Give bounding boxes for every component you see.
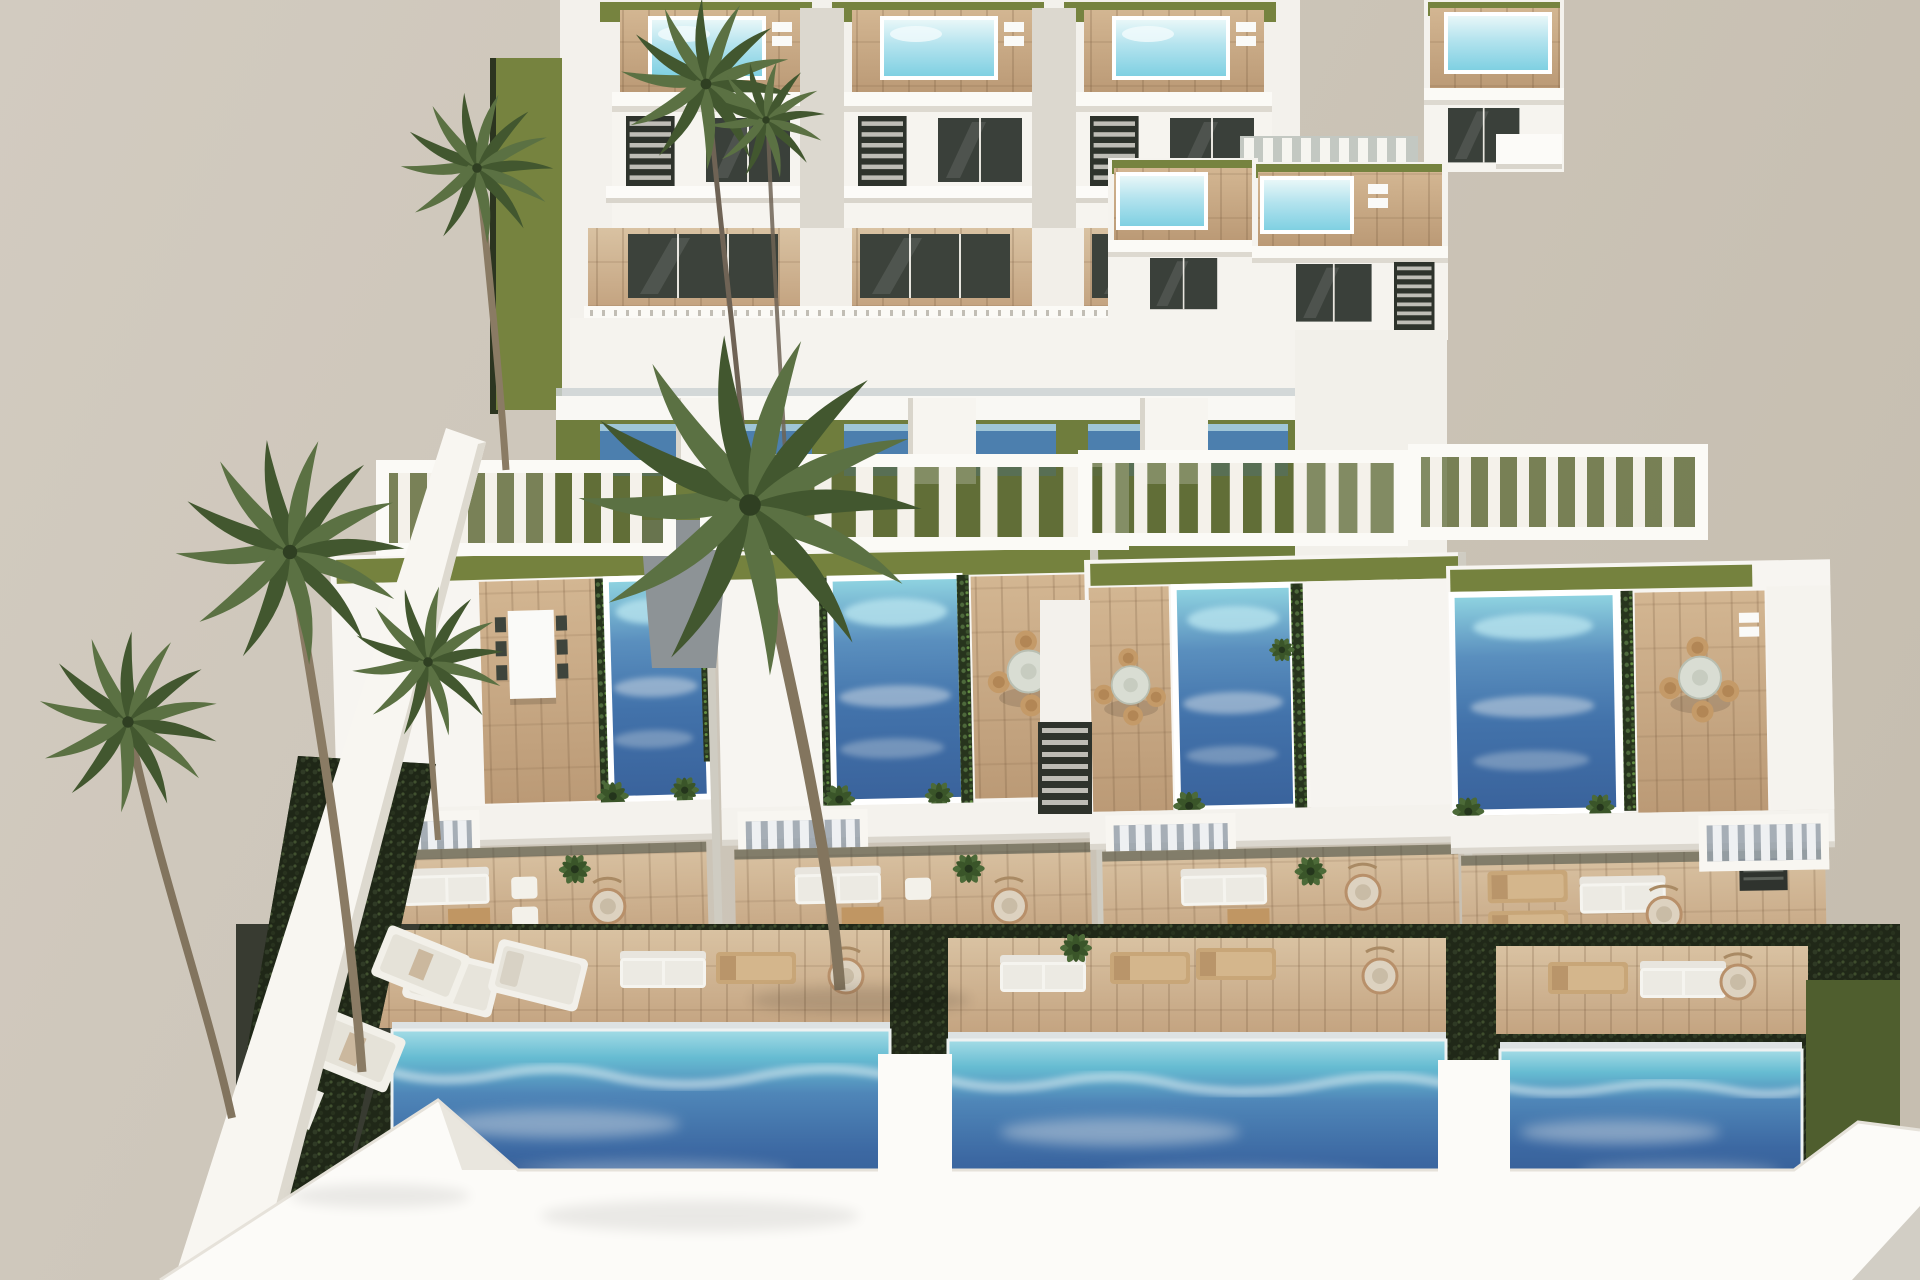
front-villa-4 [1446, 559, 1837, 956]
tier2-villa-2 [1252, 162, 1448, 340]
pergola-3 [1078, 450, 1408, 546]
rooftop-plunge-pool [1120, 176, 1204, 226]
front-villa-3 [1084, 552, 1474, 950]
dining-table [508, 610, 556, 699]
pergola-4 [1408, 444, 1708, 540]
side-lawn [496, 58, 562, 410]
garden-deck-2 [948, 932, 1446, 1032]
rooftop-plunge-pool [1448, 16, 1548, 70]
back-villa-2 [832, 2, 1046, 228]
slatted-balcony [1698, 813, 1829, 871]
tier2-villa-1 [1108, 158, 1258, 334]
terrace-sofa [403, 867, 490, 906]
architectural-render [0, 0, 1920, 1280]
rooftop-plunge-pool [1264, 180, 1350, 230]
corner-villa [1424, 0, 1564, 172]
staircase [1394, 262, 1435, 331]
central-stair [1038, 722, 1092, 814]
render-stage [0, 0, 1920, 1280]
garden-deck-3 [1496, 946, 1808, 1034]
